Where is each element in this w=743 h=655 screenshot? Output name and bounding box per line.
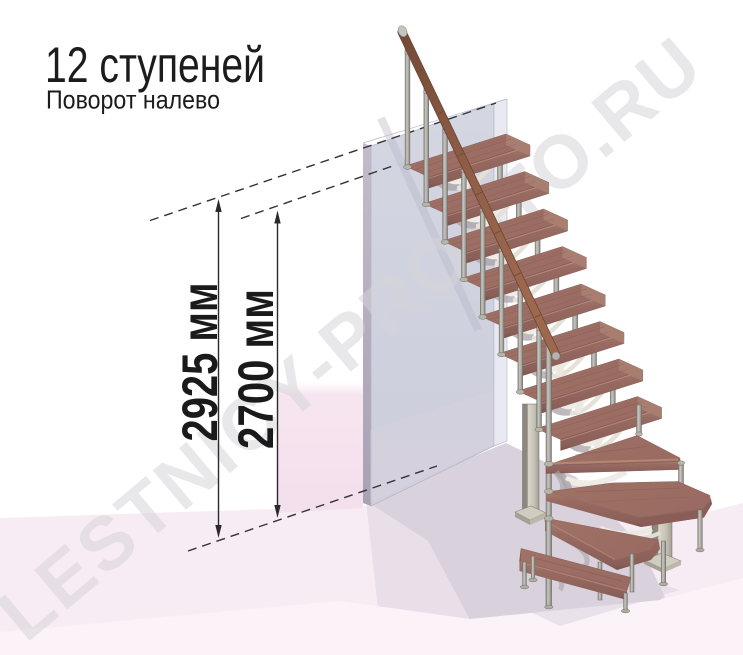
svg-text:2925 мм: 2925 мм [172,283,228,442]
svg-text:Поворот налево: Поворот налево [46,85,220,115]
svg-text:2700 мм: 2700 мм [228,289,284,449]
